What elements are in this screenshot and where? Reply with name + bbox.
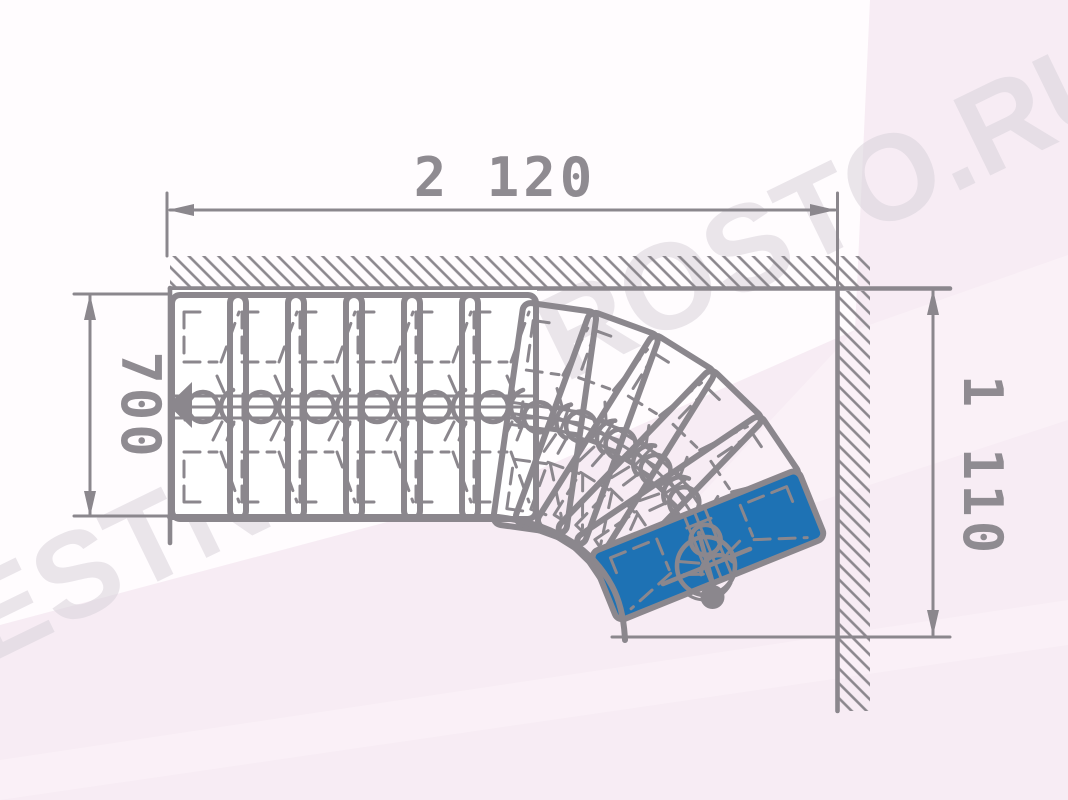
right-wall-hatch — [839, 291, 870, 711]
stair-plan-drawing: LESTNICY-PROSTO.RU 2 120 — [0, 0, 1068, 800]
stair-plan-page: LESTNICY-PROSTO.RU 2 120 — [0, 0, 1068, 800]
straight-flight-floor — [170, 290, 537, 520]
dimension-top-label: 2 120 — [414, 146, 597, 209]
dimension-right-label: 1 110 — [951, 375, 1014, 558]
post-dot — [701, 585, 725, 609]
top-wall-hatch — [170, 256, 870, 287]
dimension-left-label: 700 — [109, 351, 172, 461]
